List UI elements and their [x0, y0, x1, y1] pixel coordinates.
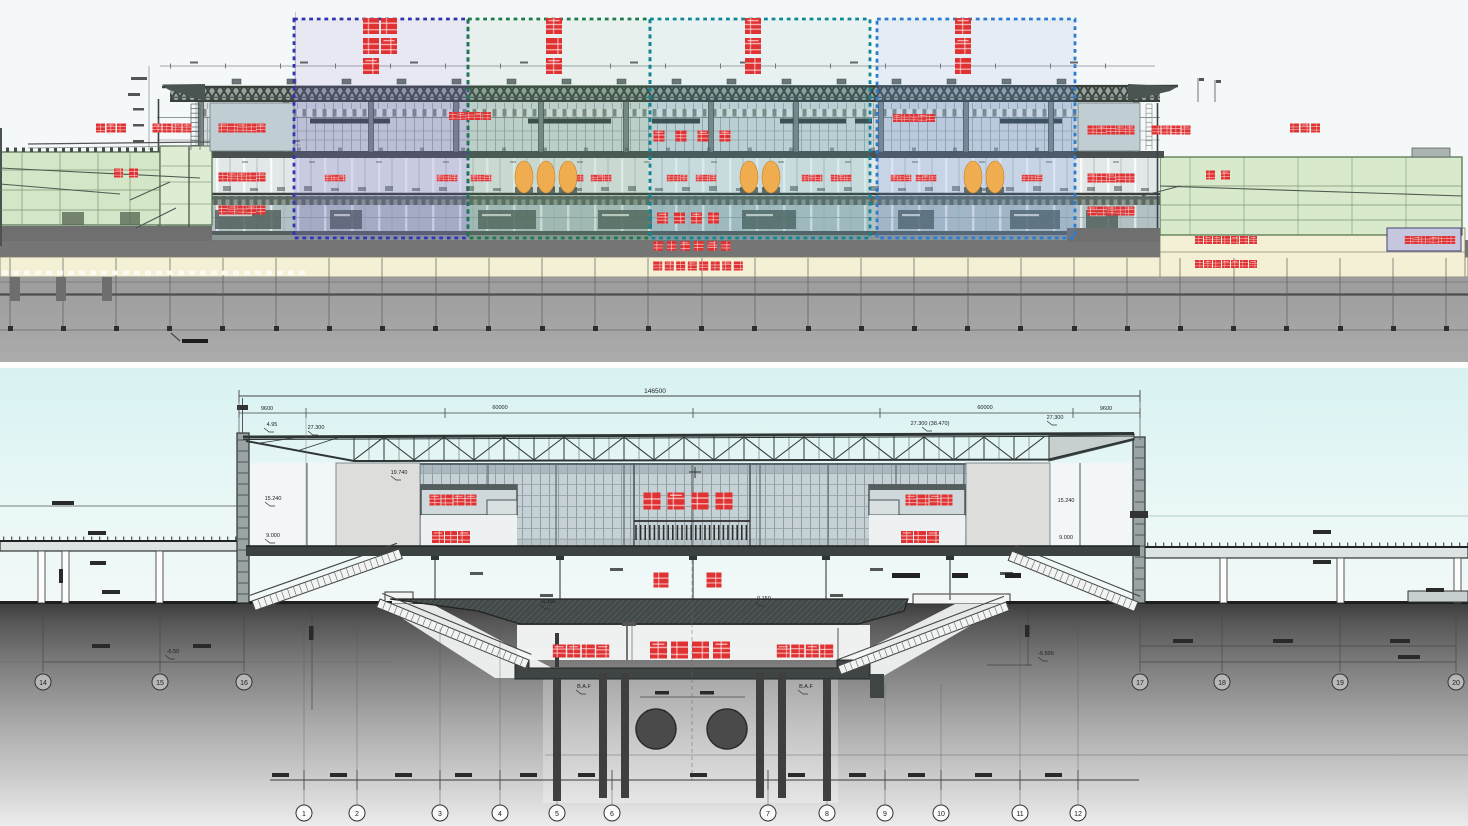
svg-text:1: 1	[302, 811, 306, 818]
svg-text:9.000: 9.000	[266, 533, 280, 539]
svg-text:9600: 9600	[261, 406, 273, 412]
svg-text:4: 4	[498, 811, 502, 818]
svg-text:15.240: 15.240	[265, 496, 282, 502]
svg-text:16: 16	[240, 680, 248, 687]
svg-text:6: 6	[610, 811, 614, 818]
svg-text:15.240: 15.240	[1058, 498, 1075, 504]
svg-text:17: 17	[1136, 680, 1144, 687]
svg-text:10: 10	[937, 811, 945, 818]
svg-text:18: 18	[1218, 680, 1226, 687]
svg-text:-0.150: -0.150	[540, 599, 556, 605]
svg-text:9600: 9600	[1100, 406, 1112, 412]
svg-text:27.300: 27.300	[1047, 415, 1064, 421]
svg-text:B.A.F: B.A.F	[799, 684, 813, 690]
svg-text:20: 20	[1452, 680, 1460, 687]
svg-text:19: 19	[1336, 680, 1344, 687]
svg-text:5: 5	[555, 811, 559, 818]
svg-text:3: 3	[438, 811, 442, 818]
svg-text:4.95: 4.95	[267, 422, 278, 428]
svg-text:-6.50: -6.50	[167, 649, 180, 655]
svg-text:60000: 60000	[492, 405, 507, 411]
svg-text:15: 15	[156, 680, 164, 687]
svg-text:9: 9	[883, 811, 887, 818]
svg-text:-0.150: -0.150	[755, 596, 771, 602]
svg-text:B.A.F: B.A.F	[577, 684, 591, 690]
svg-text:27.300 (38.470): 27.300 (38.470)	[911, 421, 950, 427]
svg-text:2: 2	[355, 811, 359, 818]
svg-text:19.740: 19.740	[391, 470, 408, 476]
svg-text:9.000: 9.000	[1059, 535, 1073, 541]
svg-text:8: 8	[825, 811, 829, 818]
svg-text:27.300: 27.300	[308, 425, 325, 431]
svg-text:7: 7	[766, 811, 770, 818]
svg-text:-6.500: -6.500	[1038, 651, 1054, 657]
svg-text:60000: 60000	[977, 405, 992, 411]
svg-text:146500: 146500	[644, 388, 666, 395]
svg-text:11: 11	[1016, 811, 1023, 818]
svg-text:14: 14	[39, 680, 47, 687]
svg-text:12: 12	[1074, 811, 1082, 818]
